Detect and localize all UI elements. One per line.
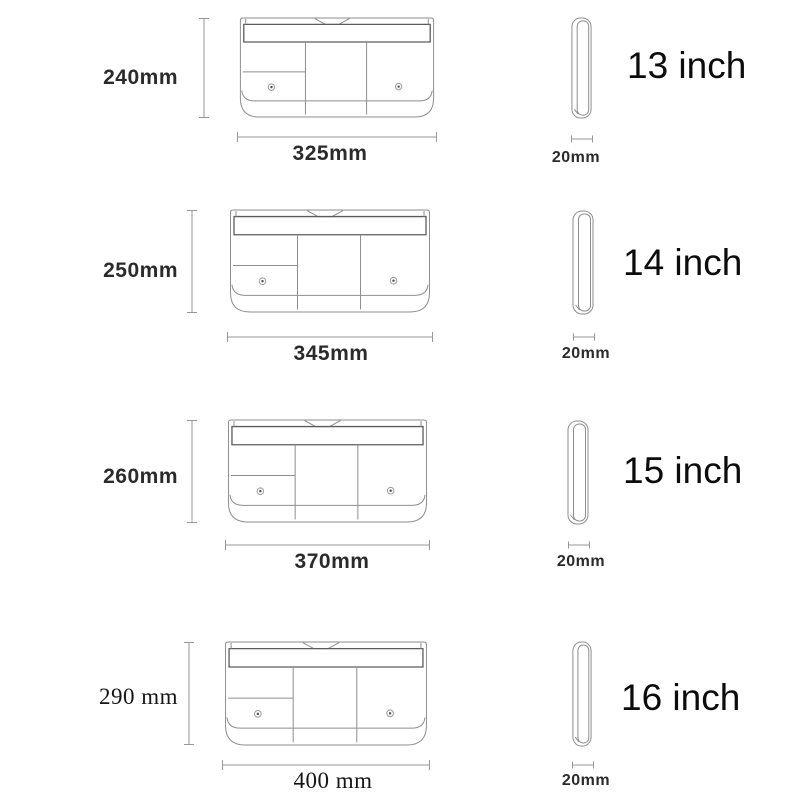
sleeve-front-view-drawing — [227, 209, 433, 313]
sleeve-front-view-drawing — [225, 419, 430, 523]
size-name-label: 13 inch — [627, 45, 746, 87]
sleeve-side-view-drawing — [572, 641, 592, 747]
width-dimension-label: 345mm — [261, 342, 401, 366]
width-dimension-line — [224, 539, 431, 551]
size-row-13-inch: 240mm 325mm 20mm 13 inch — [0, 0, 800, 800]
size-row-16-inch: 290 mm 400 mm 20mm 16 inch — [0, 0, 800, 800]
height-dimension-label: 260mm — [90, 465, 178, 489]
thickness-dimension-label: 20mm — [541, 553, 621, 571]
sleeve-side-view-drawing — [571, 17, 592, 119]
sleeve-side-view-drawing — [572, 210, 594, 315]
width-dimension-line — [226, 331, 434, 343]
thickness-dimension-line — [572, 332, 596, 342]
thickness-dimension-line — [567, 540, 591, 550]
thickness-dimension-label: 20mm — [536, 149, 616, 167]
height-dimension-line — [183, 641, 195, 746]
thickness-dimension-line — [571, 760, 595, 770]
thickness-dimension-label: 20mm — [546, 772, 626, 790]
height-dimension-line — [186, 419, 198, 524]
width-dimension-line — [236, 131, 438, 143]
size-name-label: 16 inch — [621, 677, 740, 719]
sleeve-front-view-drawing — [222, 641, 430, 746]
size-name-label: 14 inch — [623, 242, 742, 284]
width-dimension-label: 400 mm — [263, 768, 403, 794]
height-dimension-label: 290 mm — [90, 684, 178, 710]
size-row-15-inch: 260mm 370mm 20mm 15 inch — [0, 0, 800, 800]
size-name-label: 15 inch — [623, 450, 742, 492]
width-dimension-label: 325mm — [260, 142, 400, 166]
sleeve-side-view-drawing — [567, 420, 589, 525]
height-dimension-label: 240mm — [90, 66, 178, 90]
sleeve-front-view-drawing — [237, 17, 437, 118]
width-dimension-label: 370mm — [262, 550, 402, 574]
height-dimension-line — [186, 209, 198, 314]
height-dimension-label: 250mm — [90, 259, 178, 283]
height-dimension-line — [198, 17, 210, 119]
width-dimension-line — [221, 759, 431, 771]
size-row-14-inch: 250mm 345mm 20mm 14 inch — [0, 0, 800, 800]
thickness-dimension-line — [570, 134, 594, 144]
laptop-sleeve-size-diagram: 240mm 325mm 20mm 13 inch 250mm 345mm 20m… — [0, 0, 800, 800]
thickness-dimension-label: 20mm — [546, 345, 626, 363]
